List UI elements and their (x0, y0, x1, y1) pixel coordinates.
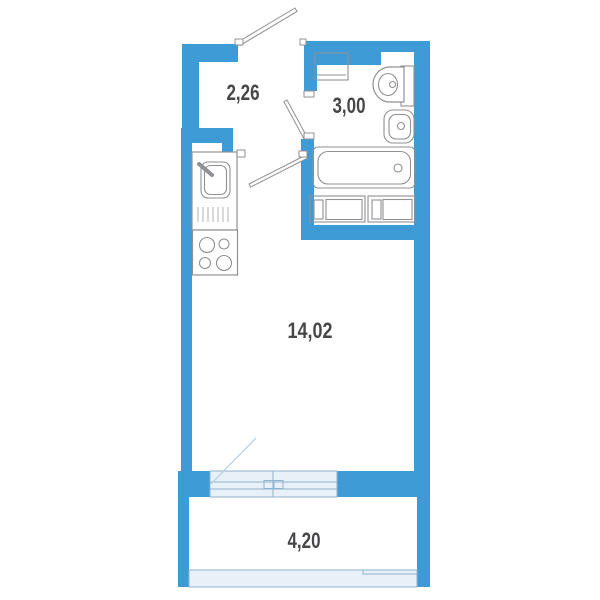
balcony-right-wall (417, 497, 430, 587)
bathroom-sink-basin (389, 115, 411, 140)
storage-unit-right (368, 196, 415, 222)
room-label-balcony: 4,20 (288, 528, 321, 553)
bathtub-drain (394, 164, 402, 172)
bathroom-fixtures (310, 53, 415, 222)
bathroom-door-jamb-top (304, 91, 314, 97)
stove (193, 230, 238, 275)
room-door-jamb-right (299, 151, 307, 157)
bathroom-top-wall (304, 41, 430, 52)
entrance-door-jamb-right (300, 39, 306, 45)
room-door-jamb-left (237, 150, 245, 157)
storage-unit-left (310, 196, 365, 222)
entrance-door-leaf (238, 8, 297, 45)
left-wall-lower (181, 128, 192, 497)
kitchen-fixtures (192, 152, 238, 275)
entrance-door-jamb-left (235, 39, 243, 45)
room-label-bathroom: 3,00 (333, 93, 366, 118)
floor-plan: 2,26 3,00 14,02 4,20 (0, 0, 600, 600)
balcony-left-wall (178, 497, 189, 587)
bathtub (313, 147, 415, 188)
window-sill-right-fill (337, 471, 430, 497)
toilet-bowl (373, 67, 404, 102)
glazing (189, 438, 417, 587)
hall-partition-horizontal (182, 128, 233, 143)
room-label-hallway: 2,26 (227, 80, 260, 105)
bathtub-inner (318, 152, 411, 185)
window-sill-left-stub (178, 471, 210, 497)
room-label-living-room: 14,02 (288, 318, 333, 343)
walls (178, 41, 430, 587)
bathroom-sink-drain (398, 123, 405, 130)
bathroom-bottom-wall (301, 225, 430, 240)
kitchen-drainer (198, 207, 228, 222)
floor-plan-svg: 2,26 3,00 14,02 4,20 (0, 0, 600, 600)
room-door-leaf (249, 155, 308, 187)
right-wall (414, 41, 430, 497)
bathroom-door-jamb-bottom (304, 133, 314, 139)
balcony-outer-glazing (189, 570, 417, 587)
